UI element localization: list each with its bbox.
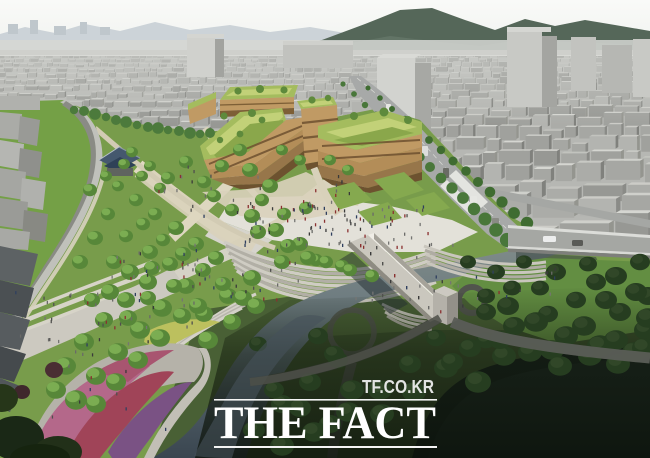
svg-text:TF.CO.KR: TF.CO.KR [362,377,434,397]
svg-text:THE FACT: THE FACT [214,397,436,449]
